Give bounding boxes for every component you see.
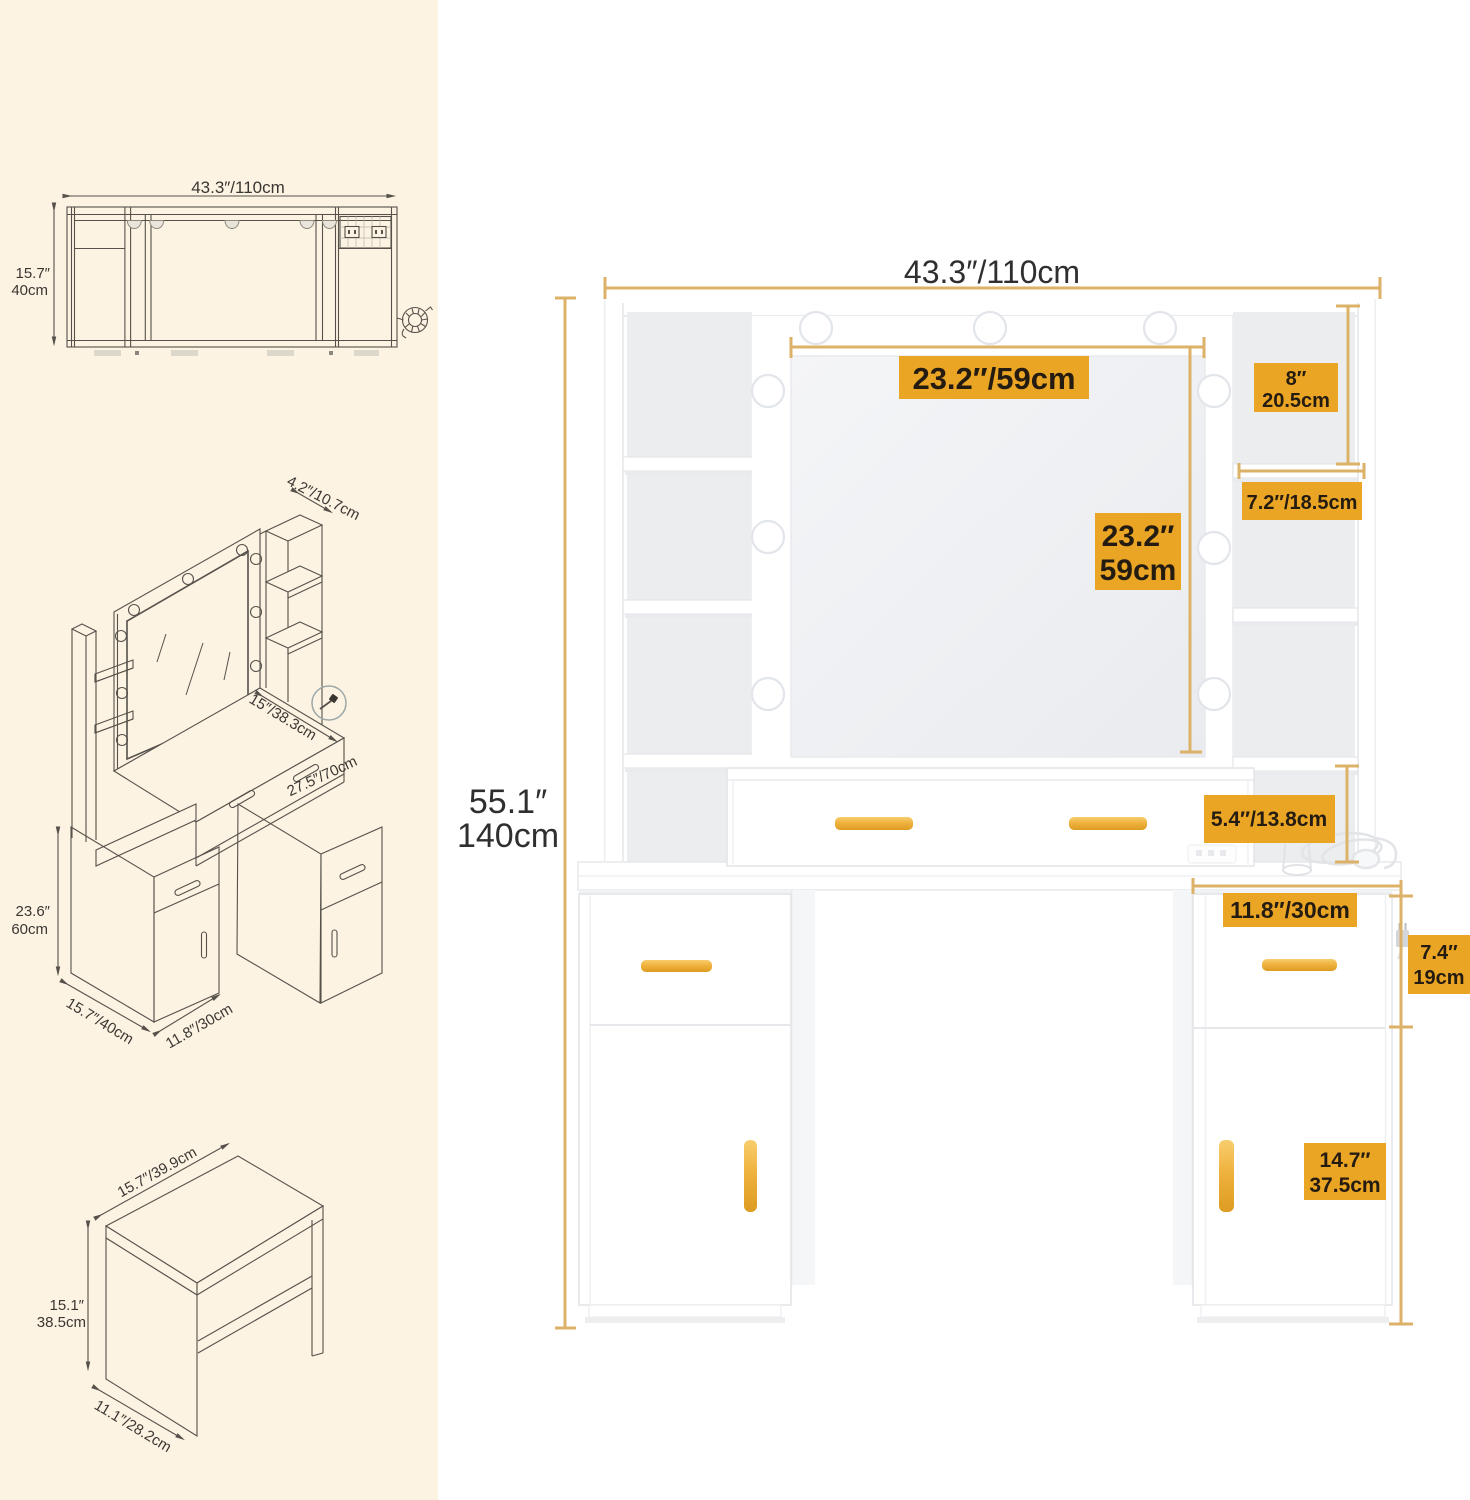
svg-text:14.7″: 14.7″ xyxy=(1320,1149,1371,1172)
svg-text:43.3″/110cm: 43.3″/110cm xyxy=(904,254,1080,290)
svg-text:37.5cm: 37.5cm xyxy=(1309,1174,1380,1197)
svg-text:19cm: 19cm xyxy=(1413,967,1464,989)
svg-text:7.2″/18.5cm: 7.2″/18.5cm xyxy=(1247,492,1358,514)
svg-text:55.1″: 55.1″ xyxy=(469,783,547,821)
svg-text:15.1″: 15.1″ xyxy=(49,1297,84,1314)
svg-text:7.4″: 7.4″ xyxy=(1420,942,1458,964)
svg-text:8″: 8″ xyxy=(1286,368,1307,390)
svg-text:60cm: 60cm xyxy=(11,921,48,938)
svg-text:59cm: 59cm xyxy=(1100,554,1177,587)
svg-text:20.5cm: 20.5cm xyxy=(1262,390,1330,412)
svg-text:15.7″: 15.7″ xyxy=(15,265,50,282)
svg-text:11.8″/30cm: 11.8″/30cm xyxy=(1230,897,1350,923)
svg-text:140cm: 140cm xyxy=(457,817,559,855)
svg-text:23.6″: 23.6″ xyxy=(15,903,50,920)
svg-text:23.2″/59cm: 23.2″/59cm xyxy=(912,361,1075,396)
svg-text:40cm: 40cm xyxy=(11,282,48,299)
svg-text:5.4″/13.8cm: 5.4″/13.8cm xyxy=(1211,808,1327,831)
svg-text:23.2″: 23.2″ xyxy=(1102,520,1175,553)
svg-text:38.5cm: 38.5cm xyxy=(37,1314,86,1331)
svg-text:43.3″/110cm: 43.3″/110cm xyxy=(191,178,285,197)
